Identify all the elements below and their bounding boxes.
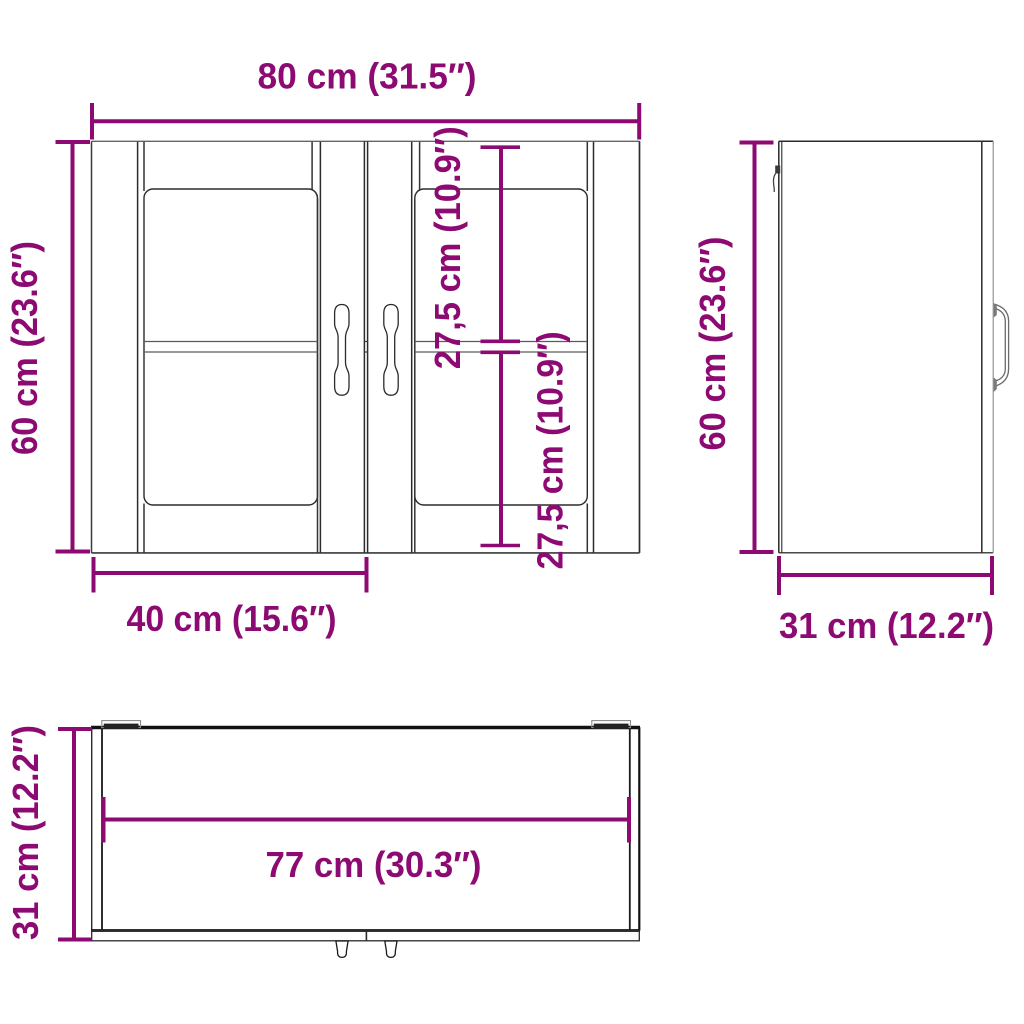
svg-text:27,5 cm (10.9″): 27,5 cm (10.9″) xyxy=(529,331,570,569)
svg-text:31 cm (12.2″): 31 cm (12.2″) xyxy=(779,605,994,646)
svg-text:27,5 cm (10.9″): 27,5 cm (10.9″) xyxy=(427,126,468,369)
svg-text:40 cm (15.6″): 40 cm (15.6″) xyxy=(127,598,337,639)
svg-text:31 cm (12.2″): 31 cm (12.2″) xyxy=(5,725,46,940)
svg-text:60 cm (23.6″): 60 cm (23.6″) xyxy=(4,241,45,455)
svg-text:77 cm (30.3″): 77 cm (30.3″) xyxy=(266,844,482,885)
svg-text:80 cm (31.5″): 80 cm (31.5″) xyxy=(258,56,477,97)
svg-text:60 cm (23.6″): 60 cm (23.6″) xyxy=(692,237,733,451)
